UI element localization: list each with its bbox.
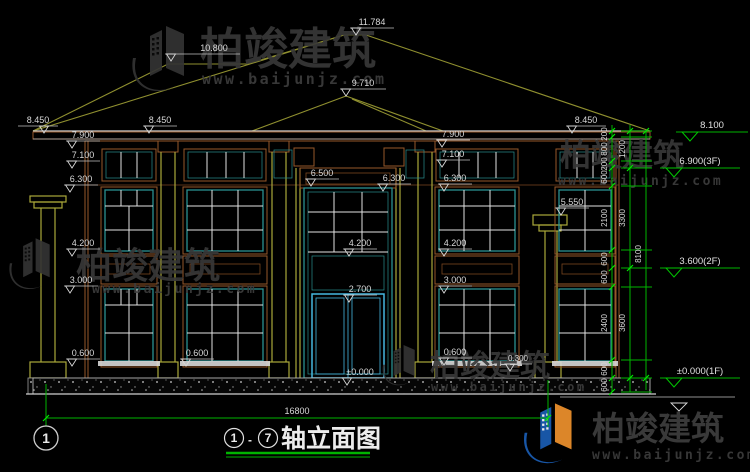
drawing-canvas: 柏竣建筑 www.baijunjz.com 柏竣建筑 www.baijunjz.… bbox=[0, 0, 750, 472]
elevation-label: 5.550 bbox=[561, 197, 584, 207]
dim-segment: 3600 bbox=[618, 314, 627, 332]
dim-segment: 2100 bbox=[600, 209, 609, 227]
dim-total-height: 8100 bbox=[634, 245, 643, 263]
dim-segment: 2400 bbox=[600, 314, 609, 332]
title-text: 轴立面图 bbox=[281, 424, 381, 453]
floor-level-label: 6.900(3F) bbox=[679, 156, 720, 167]
elevation-label: 7.900 bbox=[442, 129, 465, 139]
elevation-label: 6.300 bbox=[383, 173, 406, 183]
watermark-url: www.baijunjz.com bbox=[558, 174, 723, 189]
elevation-label: 8.450 bbox=[27, 115, 50, 125]
title-axis-start: 1 bbox=[231, 431, 238, 445]
elevation-label: 11.784 bbox=[359, 17, 386, 27]
elevation-label: 7.900 bbox=[72, 130, 95, 140]
axis-number: 1 bbox=[42, 430, 50, 446]
watermark-url: www.baijunjz.com bbox=[431, 380, 587, 394]
elevation-label: 9.710 bbox=[352, 78, 375, 88]
elevation-label: 7.100 bbox=[72, 150, 95, 160]
dim-segment: 3300 bbox=[618, 209, 627, 227]
watermark-url: www.baijunjz.com bbox=[592, 448, 750, 463]
elevation-label: 6.500 bbox=[311, 168, 334, 178]
elevation-label: 2.700 bbox=[349, 284, 372, 294]
floor-level-label: 8.100 bbox=[700, 120, 724, 131]
watermark-brand: 柏竣建筑 bbox=[592, 409, 724, 448]
dim-segment: 200 bbox=[600, 157, 609, 171]
title-separator: - bbox=[248, 433, 252, 447]
elevation-label: 0.600 bbox=[72, 348, 95, 358]
watermark-brand: 柏竣建筑 bbox=[76, 246, 220, 287]
title-axis-end: 7 bbox=[265, 431, 272, 445]
dim-segment: 200 bbox=[600, 127, 609, 141]
elevation-label: 3.000 bbox=[70, 275, 93, 285]
elevation-label: 8.450 bbox=[149, 115, 172, 125]
dim-segment: 600 bbox=[600, 252, 609, 266]
elevation-label: 10.800 bbox=[200, 43, 228, 53]
watermark-url: www.baijunjz.com bbox=[92, 282, 257, 297]
dim-segment: 600 bbox=[600, 270, 609, 284]
floor-level-label: 3.600(2F) bbox=[679, 256, 720, 267]
elevation-label: 8.450 bbox=[575, 115, 598, 125]
elevation-label: 4.200 bbox=[444, 238, 467, 248]
cad-elevation-drawing: 柏竣建筑 www.baijunjz.com 柏竣建筑 www.baijunjz.… bbox=[0, 0, 750, 472]
elevation-label: 0.600 bbox=[444, 347, 467, 357]
elevation-label: ±0.000 bbox=[346, 367, 373, 377]
dim-segment: 600 bbox=[600, 170, 609, 184]
elevation-label: 4.200 bbox=[72, 238, 95, 248]
dim-segment: 600 bbox=[600, 378, 609, 392]
elevation-label: 0.600 bbox=[186, 348, 209, 358]
elevation-label: 7.100 bbox=[442, 149, 465, 159]
total-width-label: 16800 bbox=[284, 406, 309, 416]
dim-segment: 1200 bbox=[618, 140, 627, 158]
elevation-label: 6.300 bbox=[444, 173, 467, 183]
dim-segment: 600 bbox=[600, 362, 609, 376]
elevation-label: 0.300 bbox=[508, 354, 529, 363]
elevation-label: 4.200 bbox=[349, 238, 372, 248]
floor-level-label: ±0.000(1F) bbox=[677, 366, 723, 377]
elevation-label: 3.000 bbox=[444, 275, 467, 285]
elevation-label: 6.300 bbox=[70, 174, 93, 184]
dim-segment: 800 bbox=[600, 142, 609, 156]
